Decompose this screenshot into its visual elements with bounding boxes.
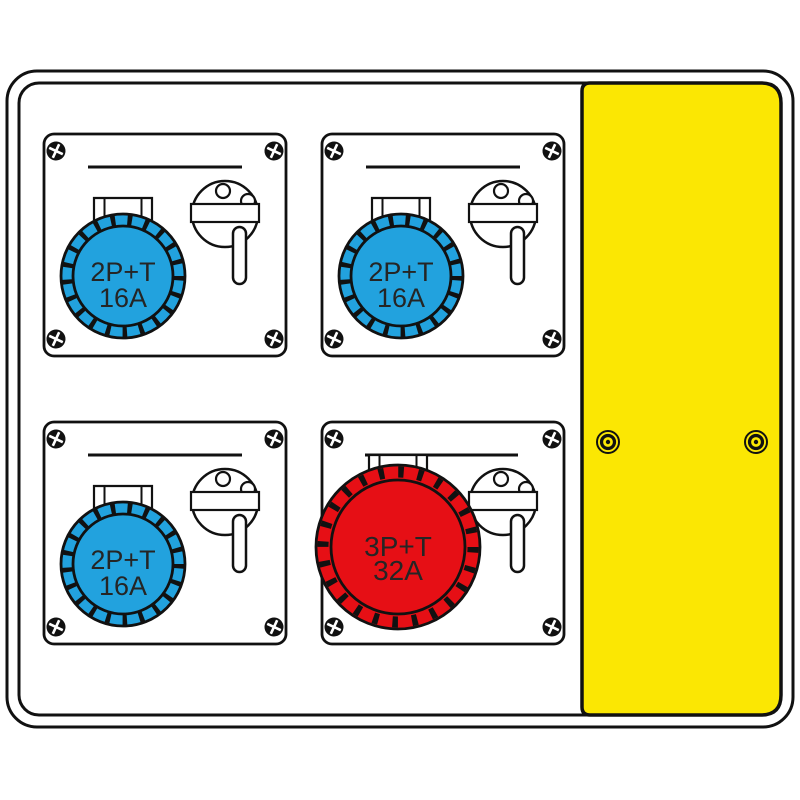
door-fastener-left <box>597 431 619 453</box>
switch-band <box>191 492 259 510</box>
cee-socket-blue: 2P+T 16A <box>339 214 463 338</box>
switch-lever <box>233 227 246 284</box>
switch-detail-circle <box>216 184 230 198</box>
switch-detail-circle <box>494 184 508 198</box>
distribution-board-illustration: 2P+T 16A 2P+T 16A <box>0 0 800 800</box>
socket-label-rating: 32A <box>373 555 423 586</box>
switch-detail-circle <box>216 472 230 486</box>
socket-label-rating: 16A <box>377 283 425 313</box>
side-door-panel <box>582 83 781 715</box>
socket-module-bottom-left: 2P+T 16A <box>43 422 286 644</box>
board-drawing: 2P+T 16A 2P+T 16A <box>0 0 800 800</box>
door-fastener-right <box>745 431 767 453</box>
switch-lever <box>233 515 246 572</box>
switch-detail-circle <box>494 472 508 486</box>
socket-label-rating: 16A <box>99 571 147 601</box>
cee-socket-blue: 2P+T 16A <box>61 214 185 338</box>
cee-socket-blue: 2P+T 16A <box>61 502 185 626</box>
socket-module-top-right: 2P+T 16A <box>321 134 564 356</box>
switch-band <box>469 492 537 510</box>
socket-module-bottom-right: 3P+T 32A <box>316 422 565 644</box>
switch-lever <box>511 515 524 572</box>
switch-band <box>469 204 537 222</box>
switch-band <box>191 204 259 222</box>
socket-label-rating: 16A <box>99 283 147 313</box>
cee-socket-red: 3P+T 32A <box>316 465 480 629</box>
socket-module-top-left: 2P+T 16A <box>43 134 286 356</box>
switch-lever <box>511 227 524 284</box>
